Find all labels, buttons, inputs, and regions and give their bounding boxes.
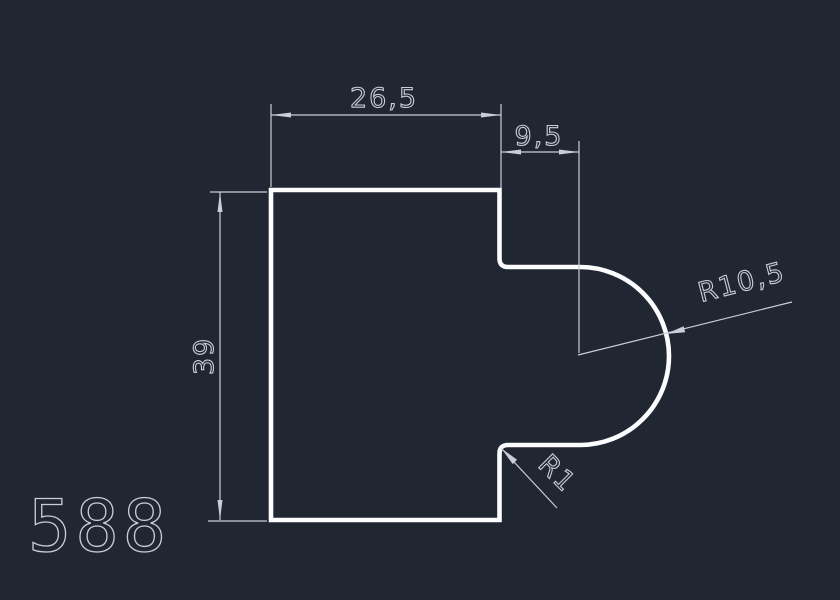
dim-radius-small-value: R1 (532, 449, 582, 499)
dim-height: 39 (189, 192, 267, 521)
arrowhead-left-icon (271, 113, 291, 118)
part-profile-outline (271, 190, 669, 520)
arrowhead-radius-icon (666, 326, 685, 334)
part-number-label: 588 (28, 484, 170, 568)
dim-step-width-value: 9,5 (515, 121, 564, 152)
dim-top-width-value: 26,5 (350, 83, 418, 114)
radius-leader-line (578, 302, 792, 355)
dim-radius-large-value: R10,5 (695, 257, 789, 309)
arrowhead-radius-icon (502, 449, 518, 465)
arrowhead-right-icon (481, 113, 501, 118)
dim-radius-small: R1 (502, 449, 583, 509)
arrowhead-up-icon (218, 192, 223, 212)
dim-step-width: 9,5 (501, 121, 579, 353)
cad-drawing-canvas[interactable]: 26,5 9,5 39 R10,5 R1 588 (0, 0, 840, 600)
arrowhead-down-icon (218, 500, 223, 520)
dim-height-value: 39 (189, 337, 220, 375)
dim-top-width: 26,5 (271, 83, 501, 188)
